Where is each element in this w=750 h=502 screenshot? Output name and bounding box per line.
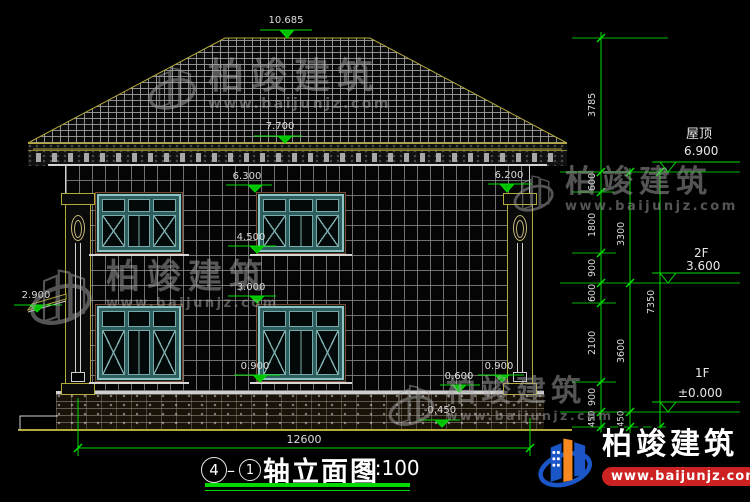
dim-600-a: 600 [586, 170, 599, 194]
level-label-roof: 屋顶 [686, 123, 712, 142]
elevation-value-win1-top: 3.000 [228, 282, 274, 293]
elevation-value-win1-sill: 0.900 [232, 361, 278, 372]
brand-logo-text: 柏竣建筑 [602, 428, 750, 461]
brand-logo-url: www.baijunjz.com [602, 467, 750, 486]
dimension-chain-lines [78, 32, 660, 456]
elevation-value-ground: -0.450 [416, 405, 464, 416]
elevation-value-pipe-right: 0.900 [476, 361, 522, 372]
level-marker-roof [652, 162, 740, 172]
elevation-marker-eave [254, 136, 302, 143]
brand-logo-icon [538, 428, 596, 496]
dim-3785: 3785 [586, 72, 599, 138]
level-value-roof: 6.900 [684, 144, 718, 158]
dim-600-b: 600 [586, 282, 599, 304]
elevation-marker-win2-sill [228, 246, 276, 253]
level-label-2f: 2F [694, 246, 709, 260]
elevation-value-win2-sill: 4.500 [228, 232, 274, 243]
axis-bubble-end: 1 [239, 459, 261, 481]
left-step [20, 416, 58, 430]
elevation-marker-cap-right [488, 184, 532, 192]
elevation-value-canopy: 2.900 [12, 290, 60, 301]
dim-450-b: 450 [615, 410, 628, 428]
dimension-ticks [74, 34, 664, 452]
roof-outline [28, 38, 567, 149]
dim-7350: 7350 [645, 262, 658, 342]
dim-2100: 2100 [586, 312, 599, 374]
dim-total-width: 12600 [269, 433, 339, 446]
elevation-marker-win1-top [228, 296, 276, 303]
axis-bubble-start: 4 [201, 457, 227, 483]
elevation-marker-win2-top [226, 185, 272, 192]
elevation-value-cap-right: 6.200 [486, 170, 532, 181]
dim-1800: 1800 [586, 198, 599, 252]
elevation-value-eave: 7.700 [254, 121, 306, 132]
ground-line [18, 416, 572, 430]
elevation-marker-canopy [14, 305, 62, 312]
brand-logo-block: 柏竣建筑 www.baijunjz.com [538, 428, 750, 496]
dim-450-a: 450 [586, 410, 599, 428]
elevation-marker-ridge [260, 30, 312, 38]
title-underline-thick [205, 483, 410, 487]
elevation-value-ridge: 10.685 [258, 15, 314, 26]
level-marker-1f [652, 402, 740, 412]
dim-900-a: 900 [586, 254, 599, 282]
elevation-marker-ground [418, 420, 460, 427]
elevation-value-win2-top: 6.300 [224, 171, 270, 182]
dim-3300: 3300 [615, 198, 628, 270]
level-label-1f: 1F [695, 366, 710, 380]
dim-3600: 3600 [615, 315, 628, 387]
elevation-marker-pipe-right [478, 375, 524, 382]
elevation-marker-win1-sill [234, 375, 280, 382]
elevation-value-plinth: 0.600 [438, 371, 480, 382]
elevation-marker-plinth [440, 385, 480, 392]
level-value-2f: 3.600 [686, 259, 720, 273]
axis-dash: – [227, 461, 235, 480]
level-marker-2f [652, 273, 740, 283]
elevation-drawing-canvas: 10.685 7.700 6.300 6.200 4.500 3.000 2.9… [0, 0, 750, 502]
title-underline-thin [205, 490, 410, 491]
level-value-1f: ±0.000 [678, 386, 722, 400]
dim-900-b: 900 [586, 383, 599, 411]
drawing-scale: 1:100 [362, 456, 420, 480]
